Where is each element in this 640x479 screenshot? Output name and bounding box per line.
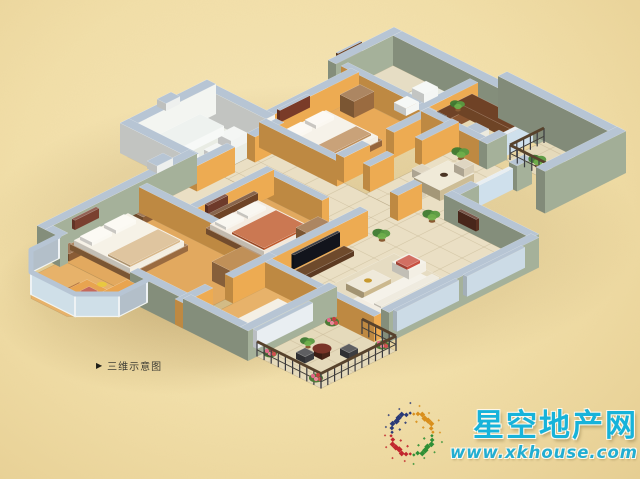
study-south-wall (240, 327, 248, 361)
caption: ▶ 三维示意图 (96, 358, 162, 373)
site-url: www.xkhouse.com (450, 443, 638, 462)
patio-table (313, 344, 332, 354)
page: ▶ 三维示意图 星空地产网 www.xkhouse.com (0, 0, 640, 479)
wall-art4 (72, 219, 75, 230)
living-window (393, 310, 397, 332)
living-window2 (463, 275, 467, 297)
caption-marker-icon: ▶ (96, 361, 103, 370)
tv (292, 254, 295, 269)
watermark-text: 星空地产网 www.xkhouse.com (450, 410, 638, 463)
bay-flowers (97, 282, 107, 287)
xkhouse-logo-icon (382, 397, 446, 475)
south-east-wall (536, 167, 545, 214)
watermark: 星空地产网 www.xkhouse.com (382, 397, 638, 475)
caption-label: 三维示意图 (107, 358, 162, 373)
site-name: 星空地产网 (450, 410, 638, 443)
